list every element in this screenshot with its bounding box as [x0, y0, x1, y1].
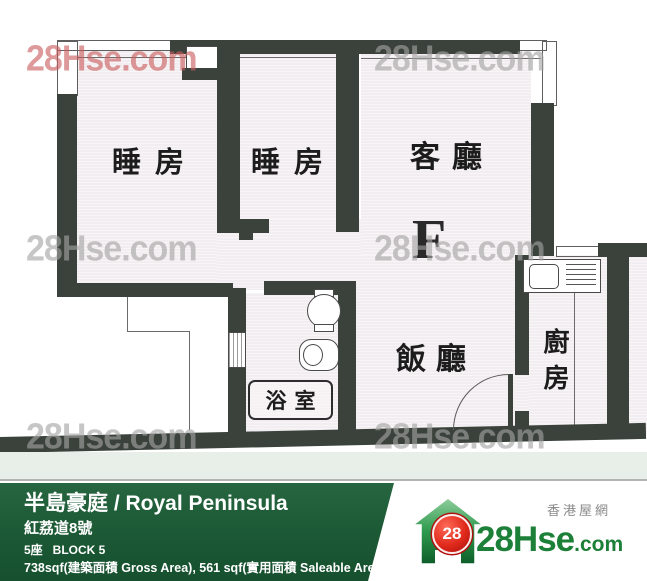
brand-tagline: 香港屋網	[547, 500, 611, 519]
property-block: 5座 BLOCK 5	[24, 541, 105, 558]
watermark: 28Hse.com	[374, 417, 545, 458]
entrance-door-icon	[228, 332, 246, 368]
watermark: 28Hse.com	[26, 39, 197, 80]
lobby-outline	[189, 331, 190, 430]
kitchen-counter-line	[574, 293, 575, 432]
window	[556, 246, 600, 257]
wall-segment	[239, 231, 253, 240]
brand-logo: 28 28Hse.com 香港屋網	[405, 495, 640, 575]
wall-segment	[228, 368, 246, 432]
brand-name-main: 28Hse	[476, 520, 574, 559]
room-fill-kitchen-door	[515, 373, 529, 415]
room-label-living: 客廳	[410, 132, 494, 176]
sink-icon	[307, 294, 341, 328]
room-fill-bedroom-2	[240, 50, 337, 220]
page: 睡房 睡房 客廳 F 飯廳 廚房 浴室 28Hse.com 28Hse.com …	[0, 0, 647, 581]
watermark: 28Hse.com	[374, 229, 545, 270]
wall-segment	[57, 283, 233, 297]
wall-segment	[336, 44, 359, 232]
watermark: 28Hse.com	[374, 39, 545, 80]
room-label-kitchen: 廚房	[536, 328, 573, 400]
lobby-outline	[127, 331, 190, 332]
wall-segment	[338, 281, 356, 432]
wall-segment	[228, 288, 246, 332]
toilet-icon	[303, 344, 323, 366]
room-label-bedroom-1: 睡房	[112, 139, 198, 181]
room-label-bedroom-2: 睡房	[251, 139, 337, 181]
property-area: 738sqf(建築面積 Gross Area), 561 sqf(實用面積 Sa…	[24, 557, 386, 576]
watermark: 28Hse.com	[26, 417, 197, 458]
watermark: 28Hse.com	[26, 229, 197, 270]
room-label-dining: 飯廳	[396, 334, 476, 378]
property-title: 半島豪庭 / Royal Peninsula	[24, 487, 288, 517]
sink-icon	[314, 324, 334, 332]
brand-tld: .com	[574, 533, 623, 556]
property-address: 紅荔道8號	[24, 517, 92, 538]
brand-name: 28Hse.com	[476, 520, 623, 560]
lobby-outline	[127, 297, 128, 332]
wall-segment	[607, 255, 629, 435]
wall-segment	[217, 44, 240, 232]
bathroom-label-box: 浴室	[248, 380, 333, 420]
divider-line	[0, 479, 647, 481]
badge-28: 28	[432, 514, 472, 554]
room-fill-adjacent-unit	[629, 255, 647, 434]
room-label-bathroom: 浴室	[266, 385, 324, 415]
kitchen-drainer-icon	[566, 264, 596, 289]
floor-plan: 睡房 睡房 客廳 F 飯廳 廚房 浴室 28Hse.com 28Hse.com …	[0, 0, 647, 470]
